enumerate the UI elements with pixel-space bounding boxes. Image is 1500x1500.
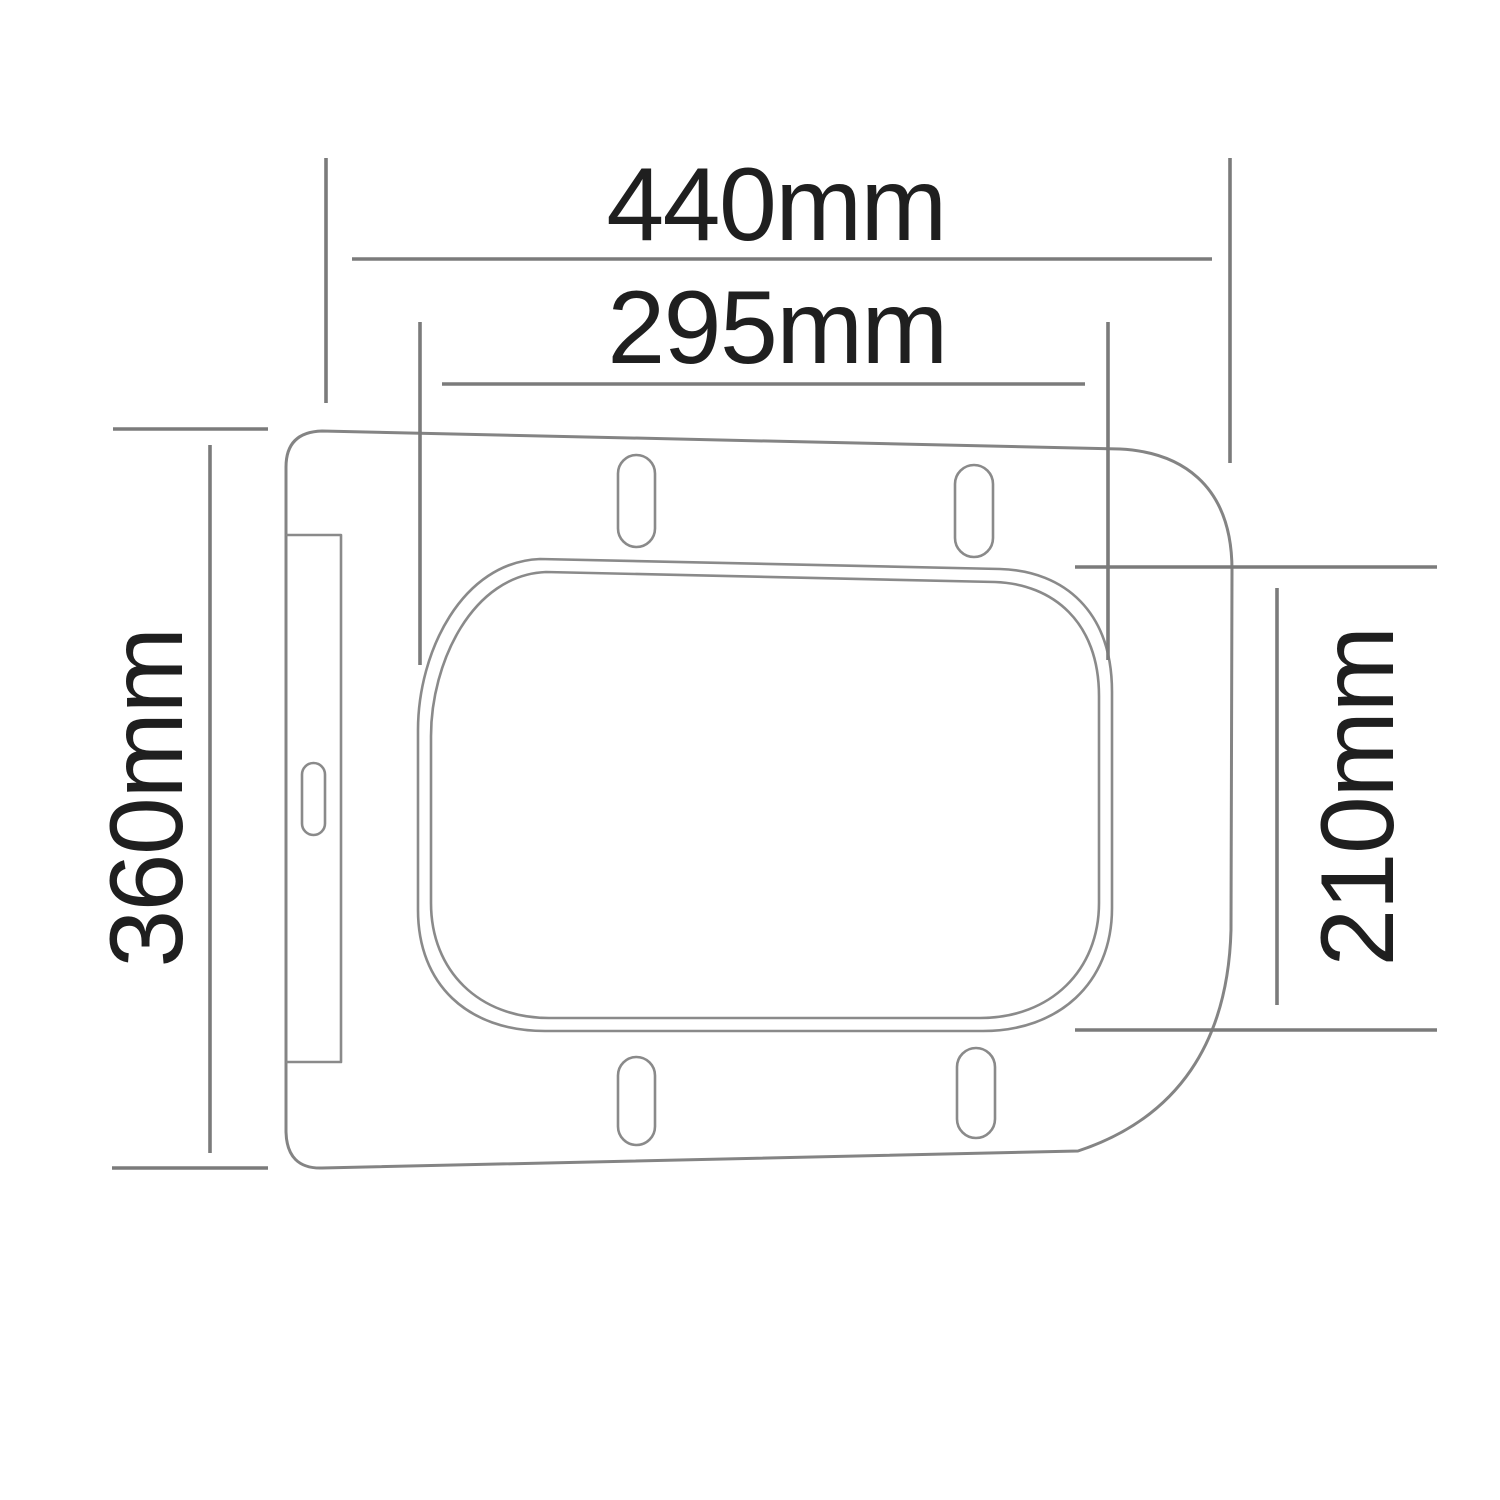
hinge-plate — [287, 535, 341, 1062]
mounting-slot-bottom-right — [957, 1048, 995, 1138]
dim-360-label: 360mm — [89, 628, 205, 967]
mounting-slot-bottom-left — [618, 1057, 655, 1145]
seat-opening-outer-contour — [418, 559, 1112, 1031]
hinge-plate-slot — [302, 763, 325, 835]
mounting-slot-top-right — [955, 465, 993, 557]
dim-210-label: 210mm — [1300, 627, 1416, 966]
seat-outer-outline — [286, 431, 1232, 1168]
toilet-seat-dimension-drawing: 440mm 295mm 360mm 210mm — [0, 0, 1500, 1500]
dim-295-label: 295mm — [607, 270, 946, 386]
mounting-slot-top-left — [618, 455, 655, 547]
dim-440-label: 440mm — [606, 147, 945, 263]
seat-opening-inner-contour — [431, 572, 1099, 1018]
dimension-diagram: 440mm 295mm 360mm 210mm — [0, 0, 1500, 1500]
